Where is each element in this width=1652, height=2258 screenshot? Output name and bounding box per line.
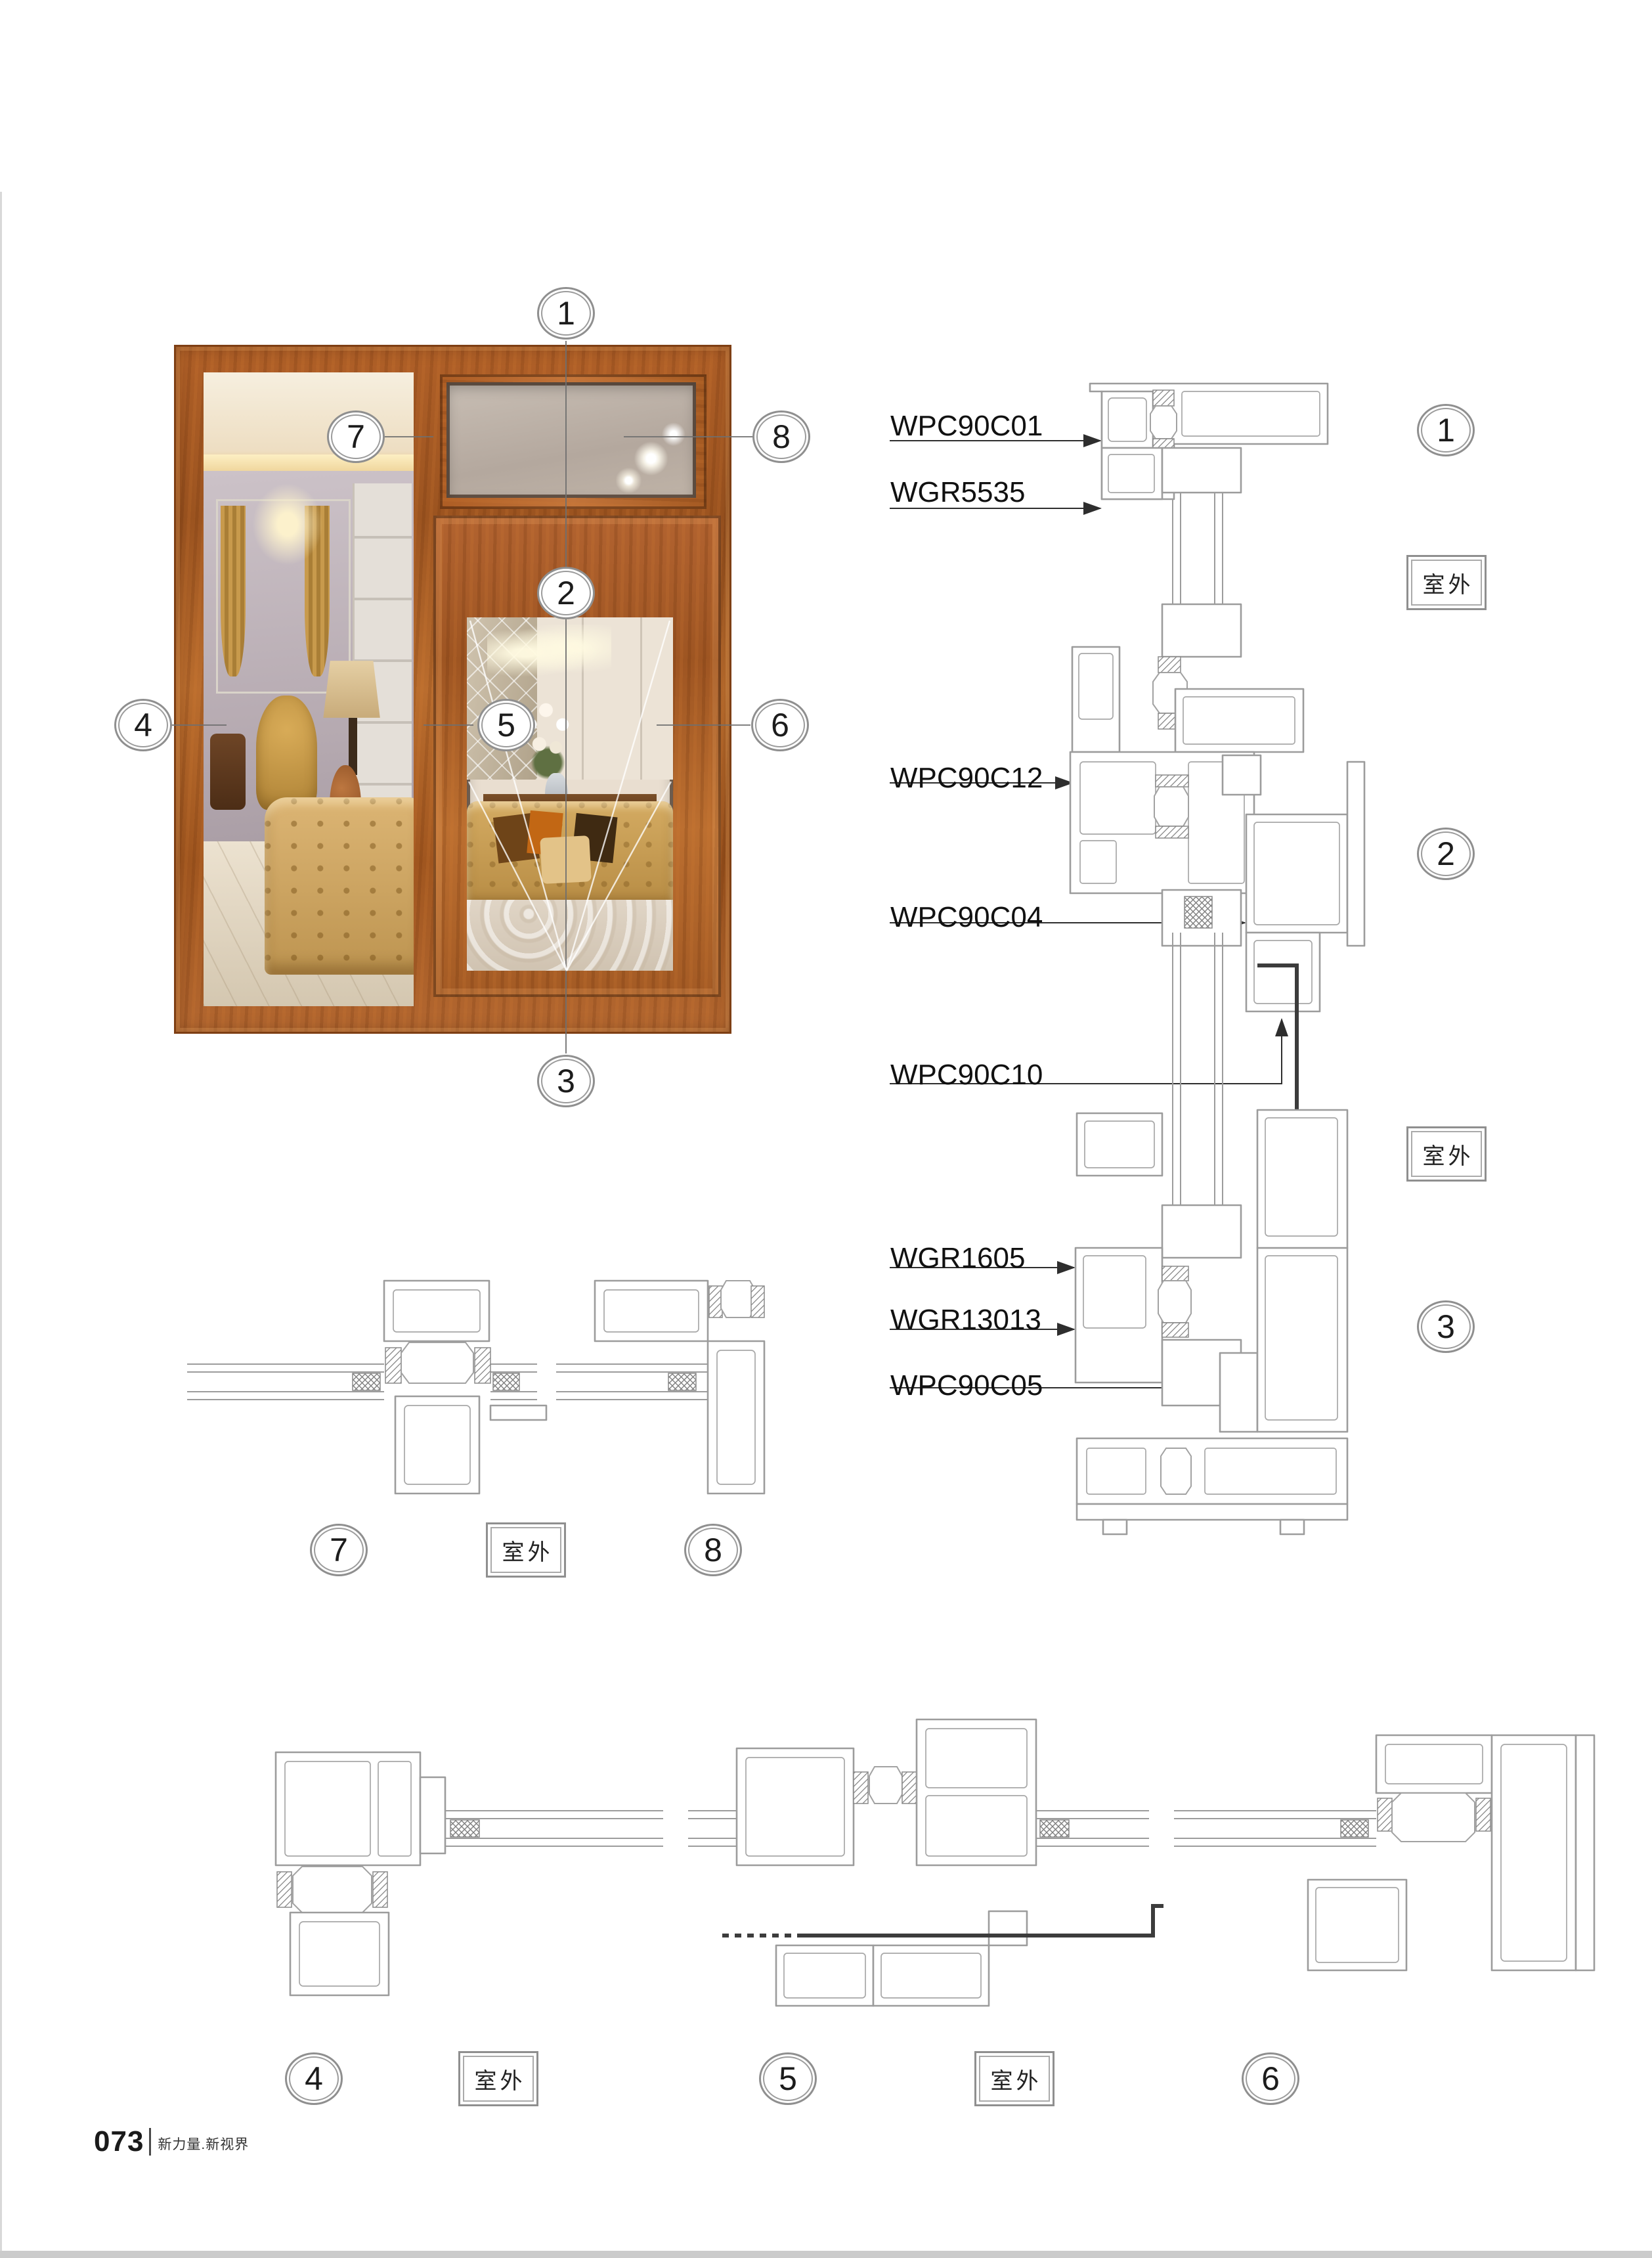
callout-number: 8 xyxy=(704,1534,722,1566)
page-number: 073 xyxy=(94,2125,144,2158)
section-drawing-vertical-stack xyxy=(880,368,1392,1589)
section-drawing-mid-row xyxy=(164,1268,775,1504)
photo-callout-lines xyxy=(85,282,827,1117)
part-label-wgr5535: WGR5535 xyxy=(890,476,1025,509)
callout-number: 7 xyxy=(330,1534,348,1566)
callout-6-section: 6 xyxy=(1242,2052,1299,2105)
callout-7-section: 7 xyxy=(310,1524,368,1576)
part-label-wgr1605: WGR1605 xyxy=(890,1242,1025,1275)
catalog-page: 1 2 3 4 5 6 7 8 WPC90C01 WGR5535 WPC90C1… xyxy=(0,0,1652,2258)
footer-tagline: 新力量.新视界 xyxy=(158,2134,249,2154)
callout-number: 5 xyxy=(497,709,515,742)
part-label-wpc90c05: WPC90C05 xyxy=(890,1369,1043,1402)
callout-5-photo: 5 xyxy=(477,699,535,751)
callout-number: 3 xyxy=(1437,1310,1455,1343)
callout-number: 8 xyxy=(772,420,791,453)
outdoor-box-5: 室外 xyxy=(974,2051,1054,2106)
callout-5-section: 5 xyxy=(759,2052,817,2105)
outdoor-label: 室外 xyxy=(1420,567,1474,599)
callout-2-section: 2 xyxy=(1417,828,1475,880)
callout-7-photo: 7 xyxy=(327,410,385,463)
callout-1-photo: 1 xyxy=(537,287,595,340)
outdoor-box-1: 室外 xyxy=(1406,555,1487,610)
callout-8-photo: 8 xyxy=(752,410,810,463)
callout-number: 6 xyxy=(771,709,789,742)
callout-number: 2 xyxy=(1437,837,1455,870)
section-drawing-bottom-row xyxy=(243,1714,1628,2010)
callout-4-section: 4 xyxy=(285,2052,343,2105)
part-label-wpc90c10: WPC90C10 xyxy=(890,1059,1043,1092)
page-footer: 073 新力量.新视界 xyxy=(94,2125,249,2158)
part-label-wgr13013: WGR13013 xyxy=(890,1304,1041,1337)
callout-2-photo: 2 xyxy=(537,567,595,619)
callout-8-section: 8 xyxy=(684,1524,742,1576)
page-edge-left xyxy=(0,192,2,2258)
callout-6-photo: 6 xyxy=(751,699,809,751)
callout-3-section: 3 xyxy=(1417,1300,1475,1353)
outdoor-label: 室外 xyxy=(471,2063,526,2095)
outdoor-label: 室外 xyxy=(988,2063,1042,2095)
callout-number: 1 xyxy=(557,297,575,330)
callout-number: 2 xyxy=(557,577,575,609)
callout-number: 7 xyxy=(347,420,365,453)
callout-number: 3 xyxy=(557,1065,575,1097)
outdoor-box-4: 室外 xyxy=(458,2051,538,2106)
footer-divider xyxy=(149,2128,151,2156)
callout-number: 4 xyxy=(305,2062,323,2095)
part-label-wpc90c01: WPC90C01 xyxy=(890,410,1043,443)
outdoor-label: 室外 xyxy=(499,1534,554,1566)
part-label-wpc90c04: WPC90C04 xyxy=(890,901,1043,934)
callout-number: 6 xyxy=(1261,2062,1280,2095)
callout-1-section: 1 xyxy=(1417,404,1475,456)
outdoor-box-2: 室外 xyxy=(1406,1126,1487,1182)
callout-number: 4 xyxy=(134,709,152,742)
page-edge-bottom xyxy=(0,2251,1652,2258)
callout-4-photo: 4 xyxy=(114,699,172,751)
callout-3-photo: 3 xyxy=(537,1055,595,1107)
part-label-wpc90c12: WPC90C12 xyxy=(890,762,1043,795)
callout-number: 1 xyxy=(1437,414,1455,447)
callout-number: 5 xyxy=(779,2062,797,2095)
outdoor-label: 室外 xyxy=(1420,1138,1474,1170)
outdoor-box-3: 室外 xyxy=(486,1522,566,1578)
